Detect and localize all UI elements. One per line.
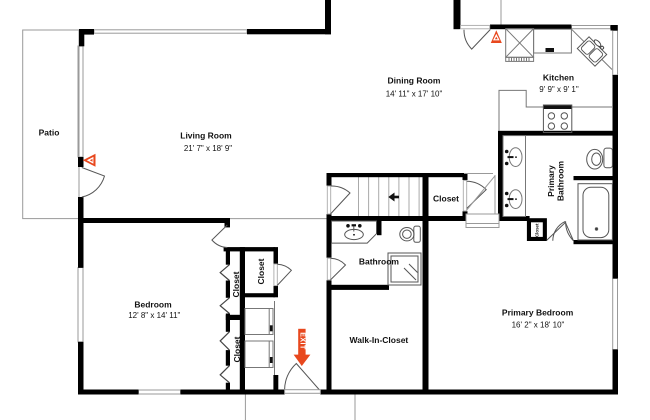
svg-text:Kitchen: Kitchen — [543, 73, 574, 83]
svg-text:Living Room: Living Room — [180, 131, 232, 141]
svg-text:EXIT: EXIT — [299, 332, 306, 350]
svg-text:Closet: Closet — [433, 194, 459, 204]
svg-text:9' 9" x 9' 1": 9' 9" x 9' 1" — [539, 85, 579, 94]
svg-text:Bedroom: Bedroom — [134, 300, 172, 310]
svg-text:Walk-In-Closet: Walk-In-Closet — [350, 335, 409, 345]
svg-text:Closet: Closet — [535, 223, 540, 237]
svg-text:Dining Room: Dining Room — [388, 76, 441, 86]
svg-text:Primary: Primary — [546, 165, 556, 197]
svg-text:Primary Bedroom: Primary Bedroom — [502, 308, 574, 318]
svg-text:14' 11" x 17' 10": 14' 11" x 17' 10" — [386, 90, 443, 99]
svg-text:Closet: Closet — [232, 336, 242, 362]
svg-text:16' 2" x 18' 10": 16' 2" x 18' 10" — [512, 321, 565, 330]
svg-text:Closet: Closet — [231, 271, 241, 297]
svg-text:21' 7" x 18' 9": 21' 7" x 18' 9" — [184, 144, 232, 153]
svg-text:Patio: Patio — [39, 128, 60, 138]
svg-text:Bathroom: Bathroom — [359, 257, 400, 267]
svg-text:Bathroom: Bathroom — [556, 160, 566, 201]
svg-text:Closet: Closet — [256, 258, 266, 284]
svg-text:12' 8" x 14' 11": 12' 8" x 14' 11" — [128, 311, 180, 320]
